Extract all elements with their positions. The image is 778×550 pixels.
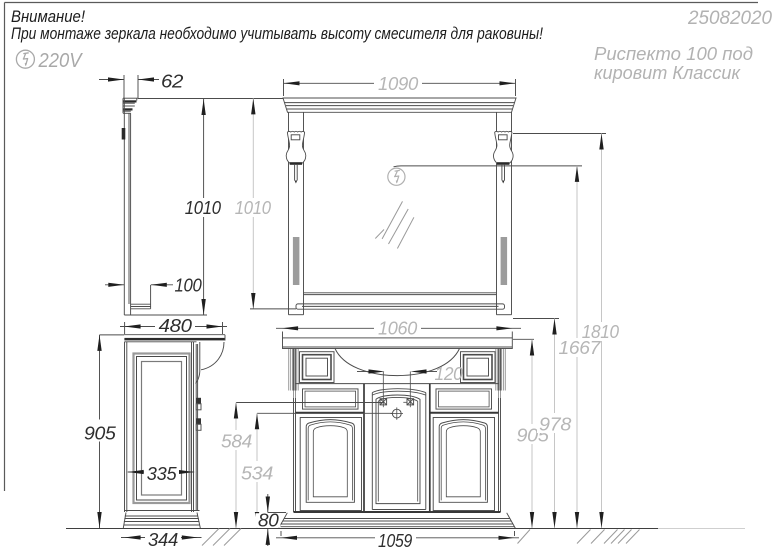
svg-text:1060: 1060 (378, 319, 417, 339)
svg-text:480: 480 (159, 316, 192, 336)
svg-text:кировит Классик: кировит Классик (594, 63, 742, 83)
svg-text:80: 80 (258, 511, 279, 531)
svg-text:584: 584 (221, 432, 252, 452)
svg-text:Риспекто 100 под: Риспекто 100 под (594, 44, 753, 64)
svg-text:978: 978 (539, 415, 571, 435)
svg-text:62: 62 (161, 72, 183, 92)
svg-text:344: 344 (148, 530, 178, 550)
svg-text:1010: 1010 (185, 198, 221, 218)
svg-text:220V: 220V (38, 50, 83, 72)
svg-text:534: 534 (241, 464, 273, 484)
svg-text:Внимание!: Внимание! (11, 8, 85, 26)
svg-text:905: 905 (84, 424, 117, 444)
svg-text:120: 120 (435, 364, 463, 384)
svg-text:100: 100 (175, 276, 202, 296)
svg-text:1059: 1059 (378, 531, 412, 550)
svg-text:1010: 1010 (235, 198, 271, 218)
svg-text:При монтаже зеркала необходимо: При монтаже зеркала необходимо учитывать… (11, 25, 543, 43)
svg-text:1810: 1810 (582, 322, 619, 342)
svg-text:1090: 1090 (378, 74, 418, 94)
svg-text:25082020: 25082020 (687, 8, 772, 29)
svg-text:335: 335 (147, 464, 178, 484)
